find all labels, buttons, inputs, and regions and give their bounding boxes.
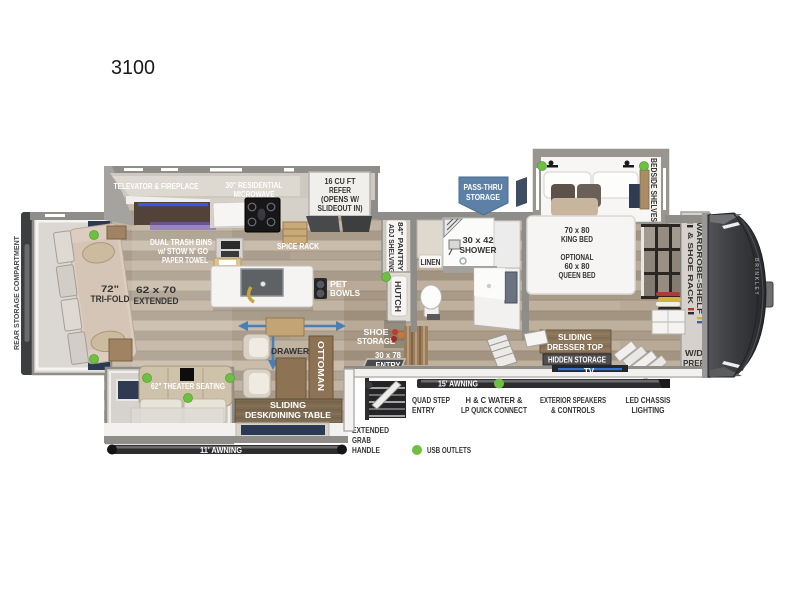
svg-text:EXTENDED: EXTENDED <box>352 425 389 435</box>
svg-text:DESK/DINING TABLE: DESK/DINING TABLE <box>245 410 331 420</box>
svg-text:BOWLS: BOWLS <box>330 288 360 298</box>
svg-text:62" THEATER SEATING: 62" THEATER SEATING <box>151 381 225 391</box>
svg-text:62 x 70: 62 x 70 <box>136 285 176 295</box>
svg-text:LINEN: LINEN <box>421 258 441 267</box>
svg-text:REFER: REFER <box>329 186 351 195</box>
svg-text:SLIDING: SLIDING <box>558 332 592 342</box>
svg-text:HANDLE: HANDLE <box>352 445 380 455</box>
svg-text:REAR STORAGE COMPARTMENT: REAR STORAGE COMPARTMENT <box>12 236 21 350</box>
svg-text:TELEVATOR & FIREPLACE: TELEVATOR & FIREPLACE <box>114 181 199 191</box>
svg-text:BEDSIDE SHELVES: BEDSIDE SHELVES <box>649 158 658 223</box>
svg-text:PAPER TOWEL: PAPER TOWEL <box>162 255 208 265</box>
svg-text:70 x 80: 70 x 80 <box>565 226 591 235</box>
svg-text:SLIDING: SLIDING <box>270 400 306 410</box>
svg-text:OTTOMAN: OTTOMAN <box>316 341 326 391</box>
svg-text:30 x 42: 30 x 42 <box>463 235 494 245</box>
svg-text:30 x 78: 30 x 78 <box>375 350 401 360</box>
svg-text:60 x 80: 60 x 80 <box>565 262 591 271</box>
svg-text:& CONTROLS: & CONTROLS <box>551 405 595 415</box>
svg-text:LED CHASSIS: LED CHASSIS <box>626 395 671 405</box>
svg-text:ENTRY: ENTRY <box>412 405 435 415</box>
svg-text:KING BED: KING BED <box>561 235 593 244</box>
svg-text:STORAGE: STORAGE <box>357 336 395 346</box>
svg-text:SPICE RACK: SPICE RACK <box>277 241 320 251</box>
svg-text:72": 72" <box>101 284 119 294</box>
svg-text:(OPENS W/: (OPENS W/ <box>321 195 360 204</box>
svg-text:84" PANTRY: 84" PANTRY <box>396 222 405 271</box>
svg-text:ADJ SHELVING: ADJ SHELVING <box>387 224 396 273</box>
svg-text:OPTIONAL: OPTIONAL <box>561 253 594 262</box>
svg-text:15' AWNING: 15' AWNING <box>438 380 478 389</box>
svg-text:TRI-FOLD: TRI-FOLD <box>91 294 130 304</box>
svg-text:STORAGE: STORAGE <box>466 192 500 202</box>
svg-text:GRAB: GRAB <box>352 435 371 445</box>
svg-text:HIDDEN STORAGE: HIDDEN STORAGE <box>548 356 607 365</box>
svg-text:SLIDEOUT IN): SLIDEOUT IN) <box>318 204 363 213</box>
svg-text:LP QUICK CONNECT: LP QUICK CONNECT <box>461 405 528 415</box>
svg-text:3100: 3100 <box>111 56 155 79</box>
svg-text:QUAD STEP: QUAD STEP <box>412 395 450 405</box>
svg-text:W/D: W/D <box>685 348 703 358</box>
svg-text:DRAWER: DRAWER <box>271 346 309 356</box>
svg-text:H & C WATER &: H & C WATER & <box>466 395 523 405</box>
svg-text:EXTERIOR SPEAKERS: EXTERIOR SPEAKERS <box>540 395 606 405</box>
svg-text:16 CU FT: 16 CU FT <box>325 177 356 186</box>
svg-text:BRINKLEY: BRINKLEY <box>753 258 759 296</box>
svg-text:DRESSER TOP: DRESSER TOP <box>547 342 603 352</box>
svg-text:& SHOE RACK: & SHOE RACK <box>686 232 695 305</box>
svg-text:SHOWER: SHOWER <box>460 245 497 255</box>
svg-text:EXTENDED: EXTENDED <box>134 296 179 306</box>
svg-text:11' AWNING: 11' AWNING <box>200 446 242 455</box>
svg-text:PASS-THRU: PASS-THRU <box>464 182 503 192</box>
svg-text:HUTCH: HUTCH <box>393 281 402 312</box>
svg-text:LIGHTING: LIGHTING <box>632 405 665 415</box>
svg-text:TV: TV <box>584 367 595 376</box>
svg-text:USB OUTLETS: USB OUTLETS <box>427 445 471 455</box>
svg-text:QUEEN BED: QUEEN BED <box>559 271 596 280</box>
